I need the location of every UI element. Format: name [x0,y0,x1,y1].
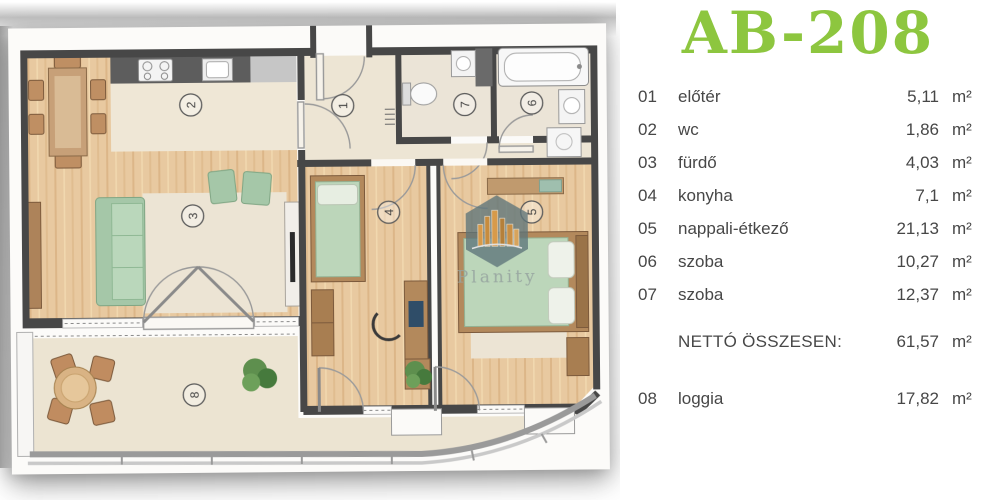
room-area: 17,82 [861,389,939,409]
room-list: 01 előtér 5,11 m² 02 wc 1,86 m² 03 fürdő… [622,80,1000,415]
legend-panel: AB-208 01 előtér 5,11 m² 02 wc 1,86 m² 0… [622,0,1000,500]
room-area: 1,86 [861,120,939,140]
room-area: 12,37 [861,285,939,305]
area-unit: m² [939,219,986,239]
loggia-row: 08 loggia 17,82 m² [622,382,1000,415]
area-unit: m² [939,87,986,107]
room-name: szoba [678,252,861,272]
wardrobe [567,337,589,375]
room-marker: 7 [454,93,476,115]
net-total-row: NETTÓ ÖSSZESEN: 61,57 m² [622,325,1000,358]
net-total-label: NETTÓ ÖSSZESEN: [678,332,861,352]
legend-row: 04 konyha 7,1 m² [622,179,1000,212]
room-area: 21,13 [861,219,939,239]
room-marker: 4 [378,201,400,223]
svg-text:2: 2 [184,101,198,108]
room-marker: 3 [182,205,204,227]
floor-plan: 1 2 3 4 5 6 7 8 [0,0,620,500]
area-unit: m² [939,252,986,272]
room-name: loggia [678,389,861,409]
tv-icon [290,232,295,282]
legend-row: 01 előtér 5,11 m² [622,80,1000,113]
room-name: wc [678,120,861,140]
room-marker: 8 [183,384,205,406]
svg-text:4: 4 [382,209,396,216]
room-marker: 6 [521,92,543,114]
room-number: 05 [638,219,678,239]
area-unit: m² [939,332,986,352]
room-marker: 1 [332,95,354,117]
area-unit: m² [939,153,986,173]
toilet-icon [411,83,437,105]
area-unit: m² [939,389,986,409]
room-number: 04 [638,186,678,206]
sofa [96,197,146,305]
room-number: 02 [638,120,678,140]
armchair [241,171,271,205]
threshold [391,409,441,435]
bedroom2-rug [471,332,567,359]
svg-text:7: 7 [458,101,472,108]
svg-text:3: 3 [186,212,200,219]
shaft [475,48,492,86]
loggia-left-wall [17,332,34,456]
room-number: 06 [638,252,678,272]
room-marker: 2 [180,94,202,116]
room-area: 5,11 [861,87,939,107]
watermark-text: Planity [457,267,538,288]
washing-machine-icon [547,128,581,157]
legend-row: 03 fürdő 4,03 m² [622,146,1000,179]
unit-title: AB-208 [622,0,1000,70]
svg-text:8: 8 [188,391,202,398]
legend-row: 02 wc 1,86 m² [622,113,1000,146]
apartment-datasheet: 1 2 3 4 5 6 7 8 [0,0,1000,500]
room-number: 03 [638,153,678,173]
room-name: fürdő [678,153,861,173]
area-unit: m² [939,120,986,140]
kitchen-counter [110,56,296,84]
floor-plan-svg: 1 2 3 4 5 6 7 8 [0,0,620,500]
legend-row: 07 szoba 12,37 m² [622,278,1000,311]
room-name: nappali-étkező [678,219,861,239]
room-number: 08 [638,389,678,409]
svg-text:1: 1 [336,102,350,109]
room-area: 4,03 [861,153,939,173]
plan-page: 1 2 3 4 5 6 7 8 [8,23,610,474]
room-area: 7,1 [861,186,939,206]
room-name: konyha [678,186,861,206]
net-total-area: 61,57 [861,332,939,352]
legend-row: 05 nappali-étkező 21,13 m² [622,212,1000,245]
svg-text:6: 6 [525,99,539,106]
living-rug [142,192,287,313]
legend-row: 06 szoba 10,27 m² [622,245,1000,278]
area-unit: m² [939,285,986,305]
area-unit: m² [939,186,986,206]
room-name: előtér [678,87,861,107]
room-number: 07 [638,285,678,305]
room-area: 10,27 [861,252,939,272]
room-name: szoba [678,285,861,305]
room-number: 01 [638,87,678,107]
kitchen-floor-zone [111,82,298,152]
armchair [208,169,237,204]
